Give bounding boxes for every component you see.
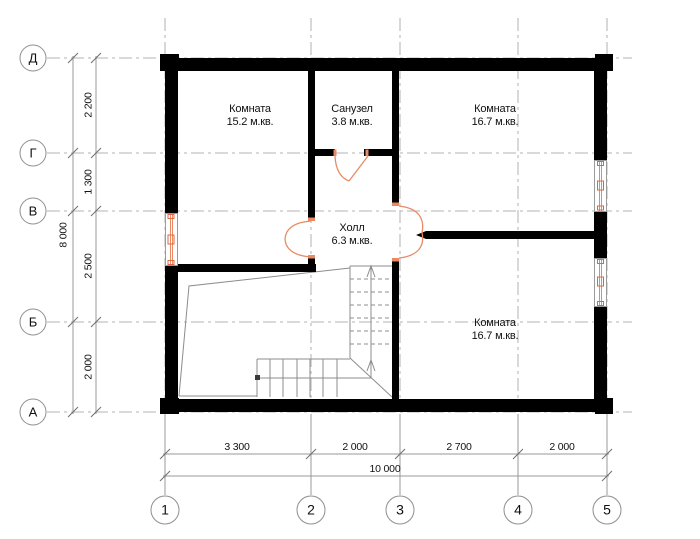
wall-interior-axis3-lower xyxy=(392,259,399,399)
corner-post-bottom-right xyxy=(595,398,613,414)
axis-bubble-row-b: Б xyxy=(20,309,47,336)
dim-left-segment-3: 2 500 xyxy=(84,253,95,278)
corner-post-bottom-left xyxy=(160,398,179,414)
room-name: Комната xyxy=(472,317,519,330)
wall-exterior-bottom xyxy=(165,399,607,412)
wall-interior-axis3-upper xyxy=(392,71,399,206)
grid-lines xyxy=(47,18,632,412)
wall-interior-alcove-south xyxy=(170,264,316,272)
dim-bottom-segment-1: 3 300 xyxy=(224,442,249,453)
wall-bathroom-south-right xyxy=(364,149,399,156)
dim-bottom-segment-4: 2 000 xyxy=(549,442,574,453)
wall-exterior-left-lower xyxy=(165,266,178,412)
axis-bubble-row-a: А xyxy=(20,399,47,426)
door-bathroom xyxy=(334,150,369,182)
floor-plan-drawing xyxy=(0,0,700,539)
stair-direction-arrow xyxy=(255,266,375,380)
wall-between-right-rooms-tip xyxy=(416,231,426,239)
room-name: Комната xyxy=(227,103,274,116)
room-area: 15.2 м.кв. xyxy=(227,116,274,129)
room-label-bedroom-bottom-right: Комната 16.7 м.кв. xyxy=(472,317,519,343)
room-name: Холл xyxy=(332,222,373,235)
dim-left-segment-4: 2 000 xyxy=(84,354,95,379)
axis-bubble-col-1: 1 xyxy=(151,496,180,525)
window-right-upper xyxy=(595,161,607,212)
dim-left-total: 8 000 xyxy=(59,222,70,247)
room-label-bedroom-left: Комната 15.2 м.кв. xyxy=(227,103,274,129)
floor-plan-canvas: Комната 15.2 м.кв. Санузел 3.8 м.кв. Ком… xyxy=(0,0,700,539)
dim-left-segment-2: 1 300 xyxy=(84,169,95,194)
room-area: 16.7 м.кв. xyxy=(472,116,519,129)
window-left xyxy=(166,214,178,266)
room-label-hall: Холл 6.3 м.кв. xyxy=(332,222,373,248)
room-area: 16.7 м.кв. xyxy=(472,330,519,343)
axis-bubble-row-v: В xyxy=(20,198,47,225)
window-right-lower xyxy=(595,259,607,307)
room-label-bathroom: Санузел 3.8 м.кв. xyxy=(331,103,372,129)
room-area: 6.3 м.кв. xyxy=(332,235,373,248)
room-area: 3.8 м.кв. xyxy=(331,116,372,129)
wall-between-right-rooms xyxy=(426,231,594,239)
room-name: Комната xyxy=(472,103,519,116)
wall-exterior-right-upper xyxy=(594,58,607,160)
wall-exterior-left-upper xyxy=(165,58,178,213)
axis-bubble-row-g: Г xyxy=(20,140,47,167)
wall-exterior-right-middle xyxy=(594,212,607,258)
wall-interior-axis2 xyxy=(308,71,315,221)
dim-bottom-segment-3: 2 700 xyxy=(446,442,471,453)
axis-bubble-col-2: 2 xyxy=(297,496,326,525)
axis-bubble-col-3: 3 xyxy=(386,496,415,525)
axis-bubble-row-d: Д xyxy=(20,45,47,72)
staircase xyxy=(257,266,392,397)
wall-exterior-right-lower xyxy=(594,307,607,412)
void-outline xyxy=(179,268,350,396)
axis-bubble-col-5: 5 xyxy=(593,496,622,525)
dim-bottom-segment-2: 2 000 xyxy=(342,442,367,453)
corner-post-top-right xyxy=(595,54,613,71)
wall-bathroom-south-left xyxy=(308,149,335,156)
axis-bubble-col-4: 4 xyxy=(504,496,533,525)
dim-left-segment-1: 2 200 xyxy=(84,92,95,117)
room-label-bedroom-top-right: Комната 16.7 м.кв. xyxy=(472,103,519,129)
dim-bottom-total: 10 000 xyxy=(370,464,401,475)
room-name: Санузел xyxy=(331,103,372,116)
corner-post-top-left xyxy=(160,54,179,71)
wall-exterior-top xyxy=(165,58,607,71)
